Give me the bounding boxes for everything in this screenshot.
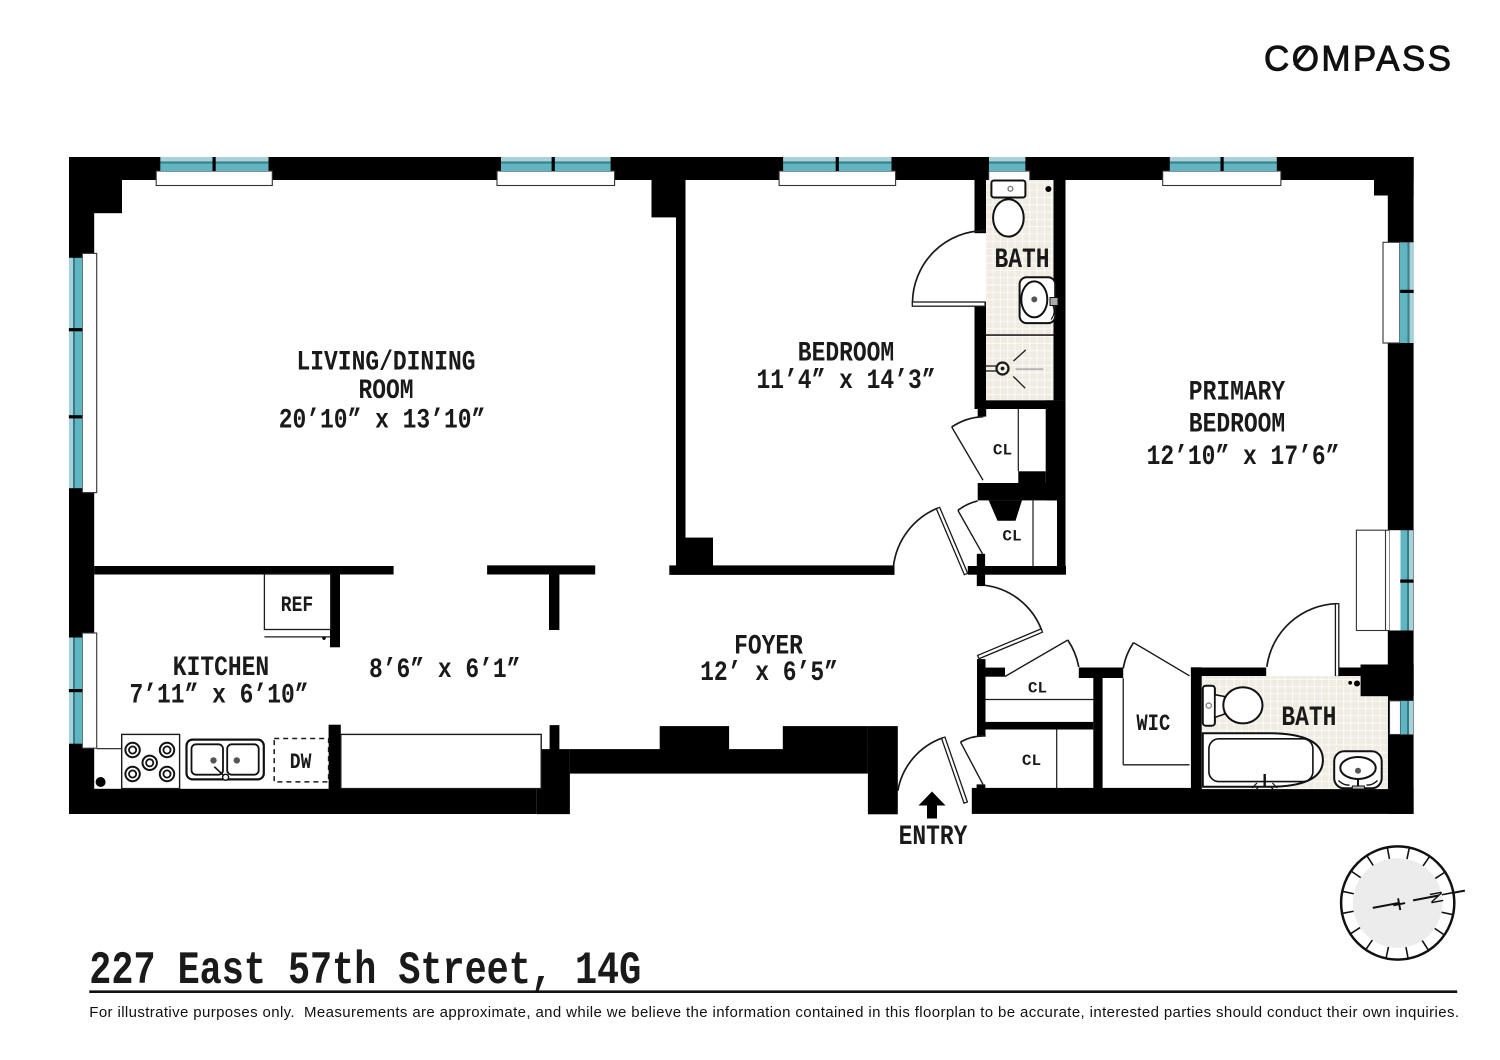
svg-text:CL: CL [993,442,1012,460]
svg-text:DW: DW [290,751,312,776]
svg-text:COMPASS: COMPASS [1264,39,1454,78]
svg-text:8’6” x 6’1”: 8’6” x 6’1” [369,654,521,686]
svg-text:227 East 57th Street, 14G: 227 East 57th Street, 14G [89,944,641,997]
svg-text:REF: REF [281,594,313,619]
svg-text:ROOM: ROOM [358,375,413,407]
svg-text:11’4” x 14’3”: 11’4” x 14’3” [756,365,935,397]
svg-text:CL: CL [1022,752,1041,770]
svg-text:CL: CL [1028,680,1047,698]
svg-text:PRIMARY: PRIMARY [1189,377,1286,409]
svg-text:CL: CL [1002,528,1021,546]
svg-text:ENTRY: ENTRY [899,821,968,853]
svg-text:20’10” x 13’10”: 20’10” x 13’10” [279,405,486,437]
svg-text:BEDROOM: BEDROOM [1189,408,1285,440]
svg-text:12’10” x 17’6”: 12’10” x 17’6” [1147,441,1340,473]
svg-text:For illustrative purposes only: For illustrative purposes only. Measurem… [89,1004,1459,1021]
svg-text:7’11” x 6’10”: 7’11” x 6’10” [129,680,308,712]
svg-text:LIVING/DINING: LIVING/DINING [296,347,475,379]
svg-text:12’ x 6’5”: 12’ x 6’5” [700,657,838,689]
svg-text:BATH: BATH [1281,702,1336,734]
svg-text:WIC: WIC [1136,711,1170,737]
svg-text:BATH: BATH [994,244,1049,276]
